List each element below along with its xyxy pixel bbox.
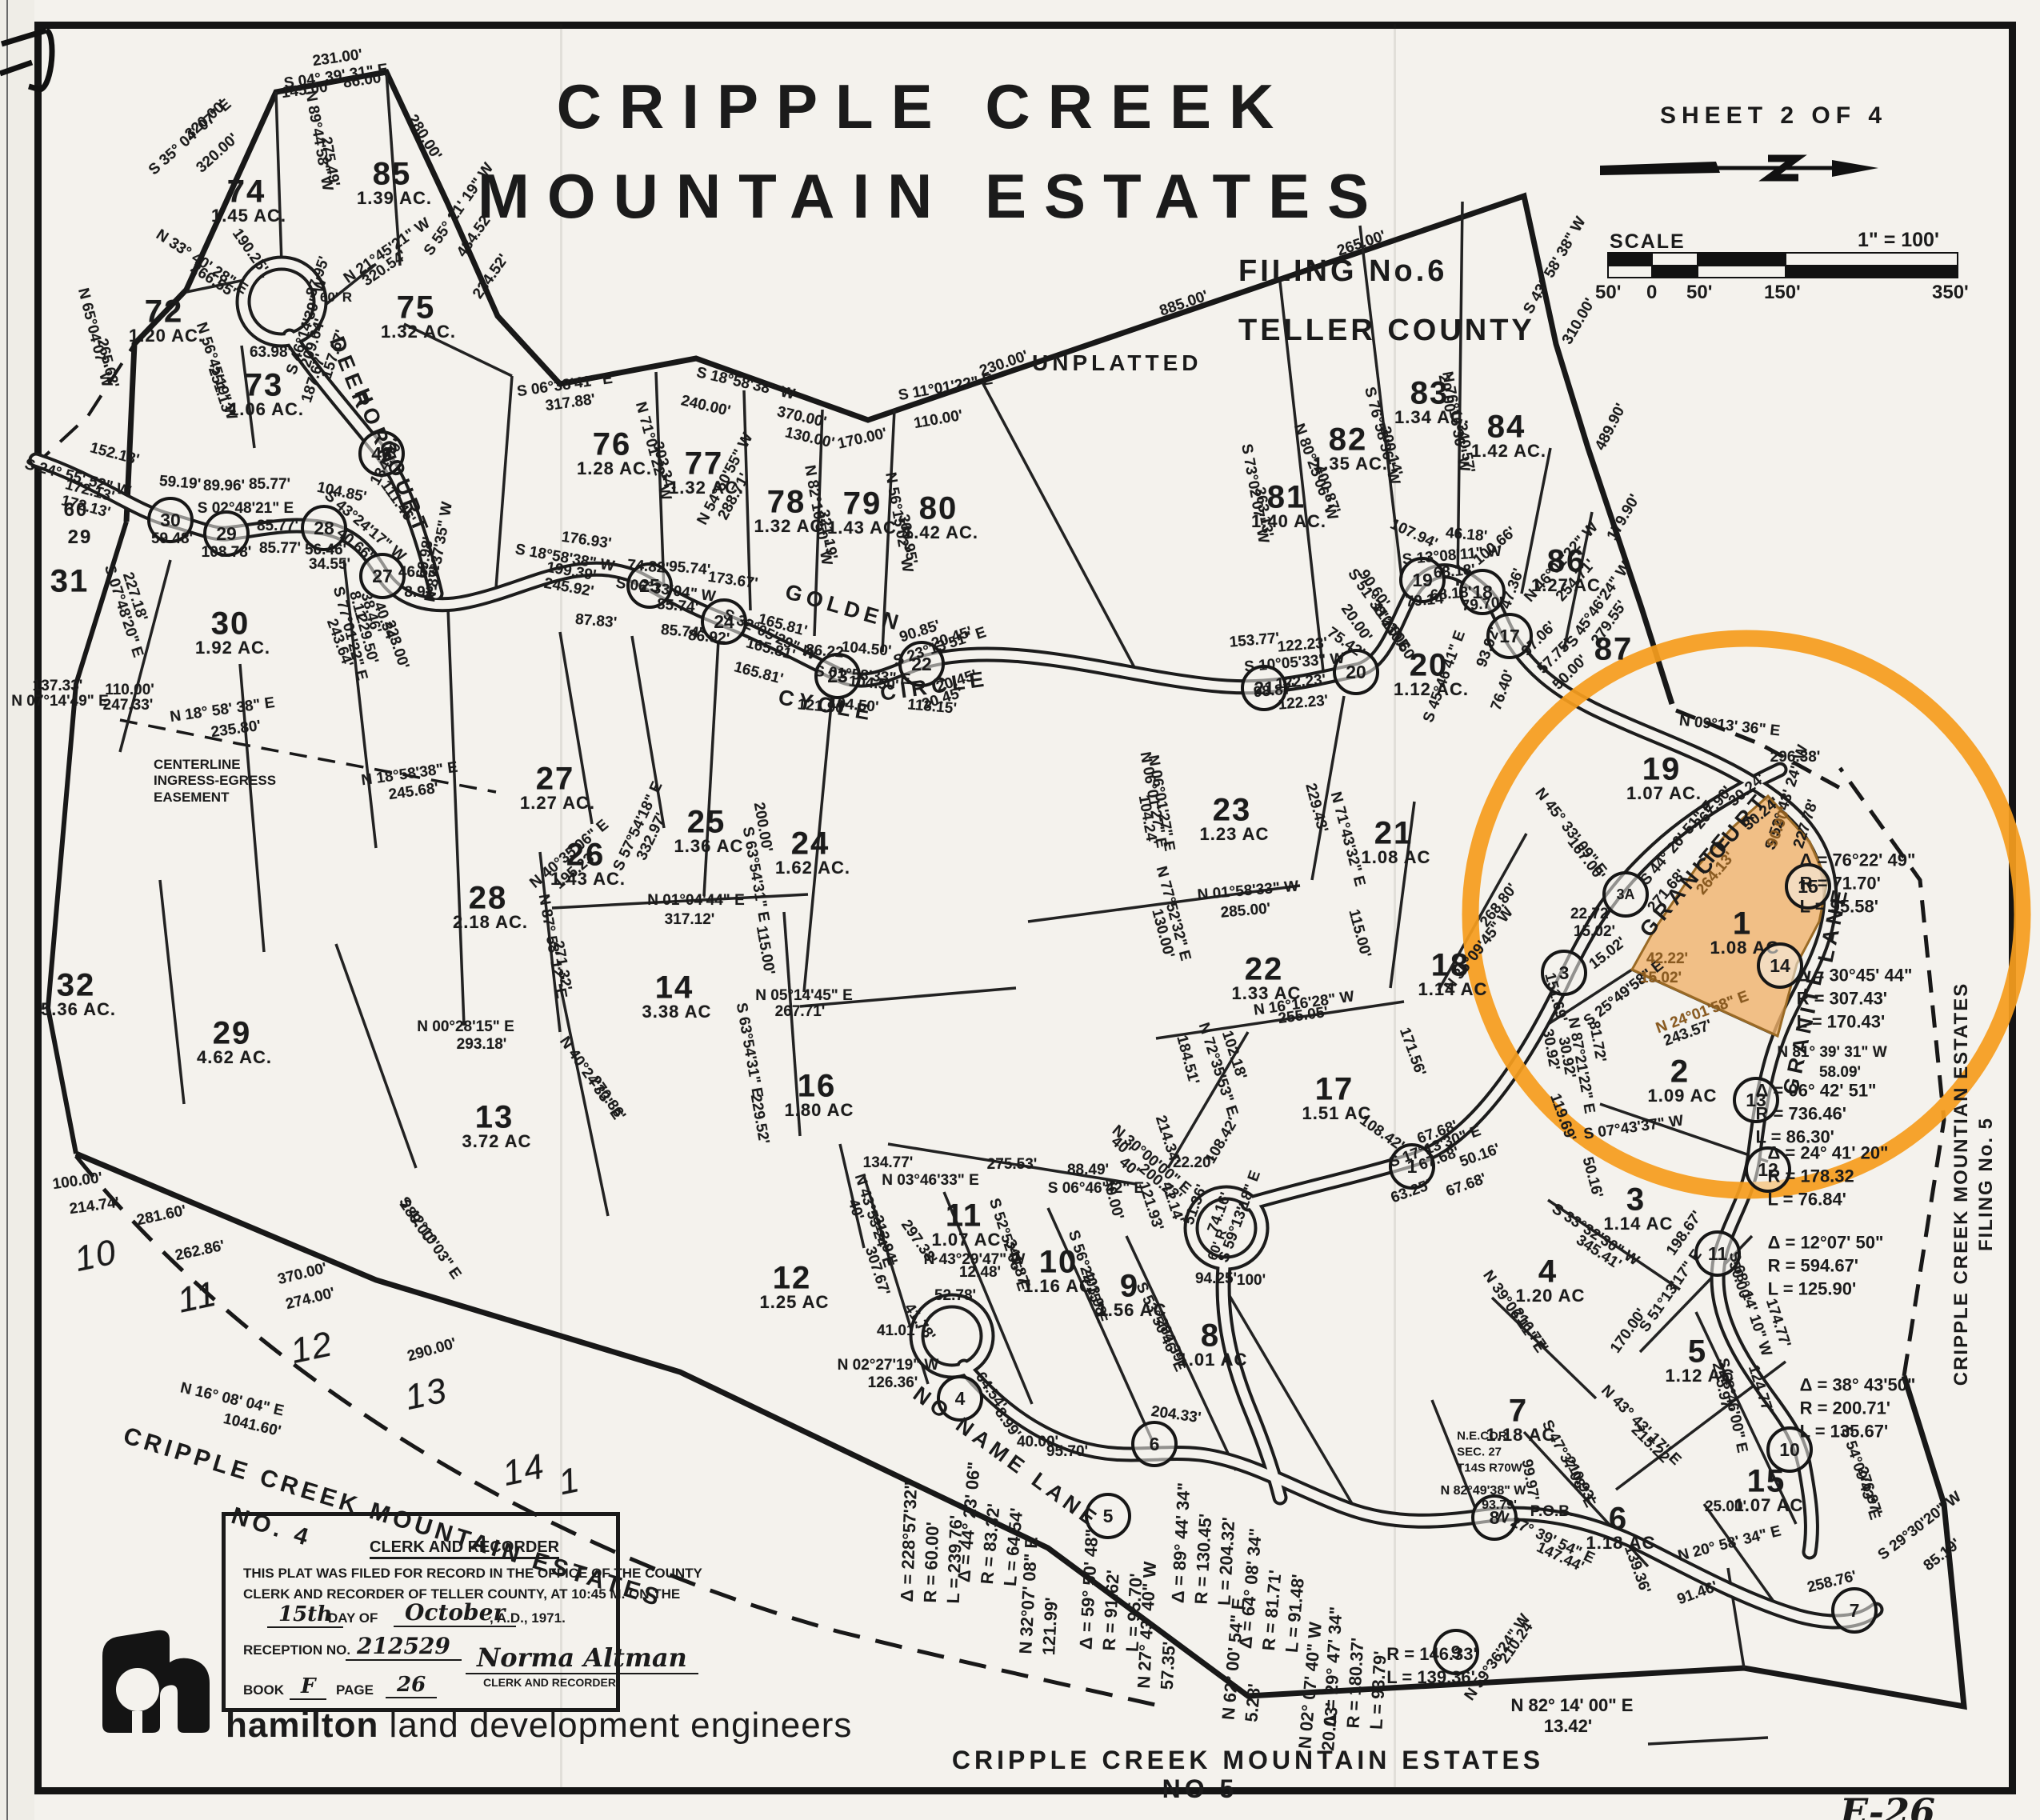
bearing-label: 247.33' (103, 697, 154, 714)
bearing-label: S 02°48'21" E (198, 500, 294, 518)
north-arrow (1600, 158, 1878, 178)
lot-acreage: 1.23 AC (1200, 824, 1270, 845)
scale-tick-0: 50' (1595, 282, 1621, 304)
scale-tick-1: 0 (1646, 282, 1657, 304)
bearing-label: 134.77' (863, 1154, 914, 1172)
map-title-line2: MOUNTAIN ESTATES (478, 160, 1386, 233)
lot-number: 29 (68, 526, 93, 549)
curve-data: N 32°07' 08" E121.99' (1014, 1536, 1066, 1656)
lot-number: 32 (57, 968, 96, 1004)
bearing-label: 85.77' (257, 518, 298, 535)
lot-acreage: 1.36 AC (674, 836, 744, 857)
lot-acreage: 1.39 AC. (357, 188, 432, 209)
lot-number: 81 (1267, 480, 1306, 516)
lot-number: 11 (946, 1198, 982, 1234)
lot-number: 80 (919, 491, 958, 527)
bearing-label: 88.49' (1067, 1162, 1109, 1179)
bearing-label: 74.82' (626, 557, 670, 578)
bearing-label: N 81° 39' 31" W (1777, 1044, 1886, 1062)
bearing-label: 60' R (320, 290, 352, 306)
lot-number: 16 (798, 1069, 837, 1105)
lot-number: 73 (245, 368, 284, 404)
easement-line1: CENTERLINE (154, 757, 276, 773)
scale-bar (1608, 253, 1958, 278)
bearing-label: N 00°28'15" E (417, 1018, 514, 1036)
curve-data: Δ = 38° 43'50"R = 200.71'L = 135.67' (1800, 1373, 1916, 1442)
bearing-label: N 02°27'19" W (838, 1357, 939, 1374)
lot-acreage: 3.38 AC (642, 1002, 712, 1022)
scale-tick-2: 50' (1686, 282, 1712, 304)
lot-number: 3 (1626, 1182, 1646, 1218)
scale-word: SCALE (1610, 230, 1686, 254)
bearing-label: 100' (1237, 1272, 1266, 1290)
lot-number: 79 (843, 486, 882, 522)
clerk-recorder-box: CLERK AND RECORDER THIS PLAT WAS FILED F… (222, 1512, 620, 1712)
easement-line3: EASEMENT (154, 790, 276, 806)
lot-number: 5 (1688, 1334, 1707, 1370)
bearing-label: 34.55' (309, 556, 350, 574)
bearing-label: 94.25' (1195, 1270, 1237, 1288)
bearing-label: N 07°14'49" E (11, 693, 108, 710)
bearing-label: 22.72' (1570, 906, 1612, 923)
bearing-label: N 05°14'45" E (755, 987, 852, 1005)
bearing-label: P.O.B. (1530, 1503, 1574, 1521)
lot-number: 84 (1487, 410, 1526, 446)
bearing-label: 59.48' (151, 530, 193, 548)
bearing-label: 89.96' (203, 478, 245, 495)
bearing-label: N 01°04'44" E (647, 892, 744, 910)
lot-number: 31 (50, 564, 90, 600)
lot-acreage: 1.80 AC (785, 1100, 854, 1121)
bearing-label: 86.92' (687, 627, 730, 648)
bearing-label: 12.48' (959, 1264, 1001, 1282)
bearing-label: 15.02' (1574, 923, 1615, 941)
lot-acreage: 2.18 AC. (453, 912, 528, 933)
curve-data: R = 146.33'L = 139.36' (1386, 1642, 1477, 1689)
plat-sheet: CRIPPLE CREEK MOUNTAIN ESTATES FILING No… (0, 0, 2040, 1820)
bearing-label: 13.42' (1544, 1716, 1592, 1737)
lot-acreage: 1.32 AC. (381, 322, 456, 342)
boundary-west (48, 522, 126, 1154)
bearing-label: 79.14' (1405, 590, 1448, 611)
lot-number: 23 (1213, 793, 1252, 829)
lot-number: 78 (767, 485, 806, 521)
lot-number: 8 (1201, 1318, 1220, 1354)
bearing-label: 296.38' (1770, 749, 1821, 766)
curve-data: Δ = 12°07' 50"R = 594.67'L = 125.90' (1768, 1230, 1884, 1300)
firm-name: hamilton land development engineers (226, 1706, 852, 1746)
curve-data: N.E.CORSEC. 27T14S R70W (1457, 1428, 1522, 1475)
lot-acreage: 1.42 AC. (1471, 441, 1546, 462)
curve-data: Δ = 24° 41' 20"R = 178.32L = 76.84' (1768, 1141, 1889, 1210)
corner-scribble (0, 30, 52, 90)
lot-acreage: 1.08 AC (1362, 847, 1431, 868)
bearing-label: 108.78' (202, 544, 252, 562)
lot-number: 25 (687, 805, 726, 841)
lot-number: 82 (1329, 422, 1368, 458)
bearing-label: 293.18' (457, 1036, 507, 1054)
bearing-label: 22.20' (1173, 1154, 1214, 1172)
lot-acreage: 5.36 AC. (41, 999, 116, 1020)
bearing-label: 46.18' (1445, 525, 1488, 546)
bearing-label: N 82° 14' 00" E (1511, 1695, 1634, 1716)
lot-number: 6 (1609, 1502, 1628, 1538)
no5-stamp-line2: NO 5 (1162, 1774, 1238, 1804)
firm-name-bold: hamilton (226, 1706, 378, 1745)
clerk-reception-no: 212529 (346, 1633, 462, 1661)
lot-acreage: 1.14 AC (1604, 1214, 1674, 1234)
station-marker: 7 (1831, 1587, 1878, 1634)
scale-tick-4: 350' (1932, 282, 1969, 304)
bearing-label: 87.83' (574, 611, 618, 632)
bearing-label: 95.74' (668, 558, 711, 579)
bearing-label: S 06°46'42" E (1048, 1180, 1144, 1198)
lot-acreage: 1.92 AC. (195, 638, 270, 658)
lot-number: 19 (1642, 752, 1682, 788)
lot-acreage: 1.07 AC. (1626, 783, 1702, 804)
bearing-label: 98.87' (1253, 681, 1296, 702)
lot-number: 75 (397, 290, 436, 326)
lot-acreage: 1.45 AC. (211, 206, 286, 226)
county-label: TELLER COUNTY (1238, 314, 1535, 348)
clerk-page-label: PAGE (336, 1682, 374, 1698)
lot-number: 11 (174, 1274, 222, 1321)
lot-number: 74 (227, 174, 266, 210)
lot-acreage: 1.27 AC. (520, 793, 595, 814)
lot-number: 12 (773, 1261, 812, 1297)
lot-acreage: 1.62 AC. (775, 858, 850, 878)
hamilton-logo (102, 1630, 210, 1734)
bearing-label: 15.02' (1640, 970, 1682, 987)
clerk-page-value: 26 (386, 1673, 437, 1698)
clerk-book-value: F (290, 1674, 326, 1700)
bearing-label: 267.71' (775, 1003, 826, 1021)
curve-data: N 27° 43' 40" W57.35' (1132, 1561, 1185, 1690)
lot-number: 1 (1733, 906, 1752, 942)
clerk-signature: Norma Altman (466, 1642, 698, 1674)
clerk-dayof: DAY OF (328, 1610, 378, 1626)
lot-acreage: 1.28 AC. (577, 458, 652, 479)
easement-note: CENTERLINE INGRESS-EGRESS EASEMENT (154, 757, 276, 806)
bearing-label: 85.77' (249, 476, 290, 494)
lot-number: 4 (1538, 1254, 1558, 1290)
lot-number: 7 (1509, 1394, 1528, 1430)
lot-number: 85 (373, 157, 412, 193)
bearing-label: 275.53' (987, 1156, 1038, 1174)
bearing-label: 52.78' (934, 1287, 976, 1305)
filing5-label-line1: CRIPPLE CREEK MOUNTIAN ESTATES (1950, 982, 1973, 1386)
bearing-label: N 03°46'33" E (882, 1172, 978, 1190)
bearing-label: 86.22' (805, 642, 848, 662)
lot-number: 29 (213, 1016, 252, 1052)
bearing-label: 317.12' (665, 911, 715, 929)
easement-line2: INGRESS-EGRESS (154, 773, 276, 789)
lot-number: 76 (593, 427, 632, 463)
bearing-label: 8.92' (404, 584, 438, 602)
lot-number: 30 (211, 606, 250, 642)
bearing-label: 63.98' (250, 344, 291, 362)
clerk-heading: CLERK AND RECORDER (370, 1538, 559, 1559)
e26-mark: E-26 (1840, 1790, 1935, 1820)
bearing-label: 68.18' (1433, 562, 1476, 582)
lot-number: 13 (475, 1100, 514, 1136)
lot-number: 2 (1670, 1054, 1690, 1090)
bearing-label: N 82°49'38" W (1441, 1484, 1526, 1498)
filing5-label-line2: FILING No. 5 (1975, 1117, 1998, 1251)
curve-data: Δ = 30°45' 44"R = 307.43'L = 170.43' (1797, 963, 1913, 1033)
lot-number: 21 (1374, 816, 1414, 852)
clerk-body-1: THIS PLAT WAS FILED FOR RECORD IN THE OF… (243, 1566, 702, 1582)
bearing-label: 59.19' (158, 473, 202, 494)
unplatted-label: UNPLATTED (1032, 350, 1202, 376)
clerk-reception-label: RECEPTION NO. (243, 1642, 350, 1658)
curve-data: Δ = 06° 42' 51"R = 736.46'L = 86.30' (1756, 1078, 1877, 1148)
curve-data: Δ = 76°22' 49"R = 71.70'L = 95.58' (1800, 848, 1916, 918)
map-title-line1: CRIPPLE CREEK (557, 70, 1292, 143)
lot-acreage: 1.07 AC (932, 1230, 1002, 1250)
bearing-label: 95.70' (1046, 1443, 1088, 1461)
lot-number: 24 (791, 826, 830, 862)
clerk-signature-title: CLERK AND RECORDER (483, 1676, 616, 1689)
lot-acreage: 1.09 AC (1648, 1086, 1718, 1106)
lot-number: 28 (469, 881, 508, 917)
clerk-book-label: BOOK (243, 1682, 284, 1698)
lot-number: 17 (1315, 1072, 1354, 1108)
bearing-label: 25.00' (1705, 1498, 1746, 1516)
bearing-label: 126.36' (868, 1374, 918, 1392)
scale-ratio: 1" = 100' (1858, 229, 1939, 252)
no5-stamp-line1: CRIPPLE CREEK MOUNTAIN ESTATES (952, 1746, 1544, 1775)
lot-number: 72 (145, 294, 184, 330)
station-marker: 6 (1131, 1421, 1178, 1467)
clerk-year: , A.D., 1971. (490, 1610, 566, 1626)
lot-acreage: 4.62 AC. (197, 1047, 272, 1068)
scale-tick-3: 150' (1764, 282, 1801, 304)
lot-number: 14 (655, 970, 694, 1006)
bearing-label: 85.77' (259, 540, 301, 558)
lot-acreage: 3.72 AC (462, 1131, 532, 1152)
bearing-label: 42.22' (1646, 950, 1688, 968)
lot-acreage: 1.20 AC (1516, 1286, 1586, 1306)
sheet-label: SHEET 2 OF 4 (1660, 102, 1887, 130)
firm-name-rest: land development engineers (378, 1706, 852, 1745)
lot-number: 27 (536, 762, 575, 798)
lot-number: 22 (1245, 952, 1284, 988)
bearing-label: 46.53' (398, 564, 440, 582)
lot-acreage: 1.25 AC (760, 1292, 830, 1313)
